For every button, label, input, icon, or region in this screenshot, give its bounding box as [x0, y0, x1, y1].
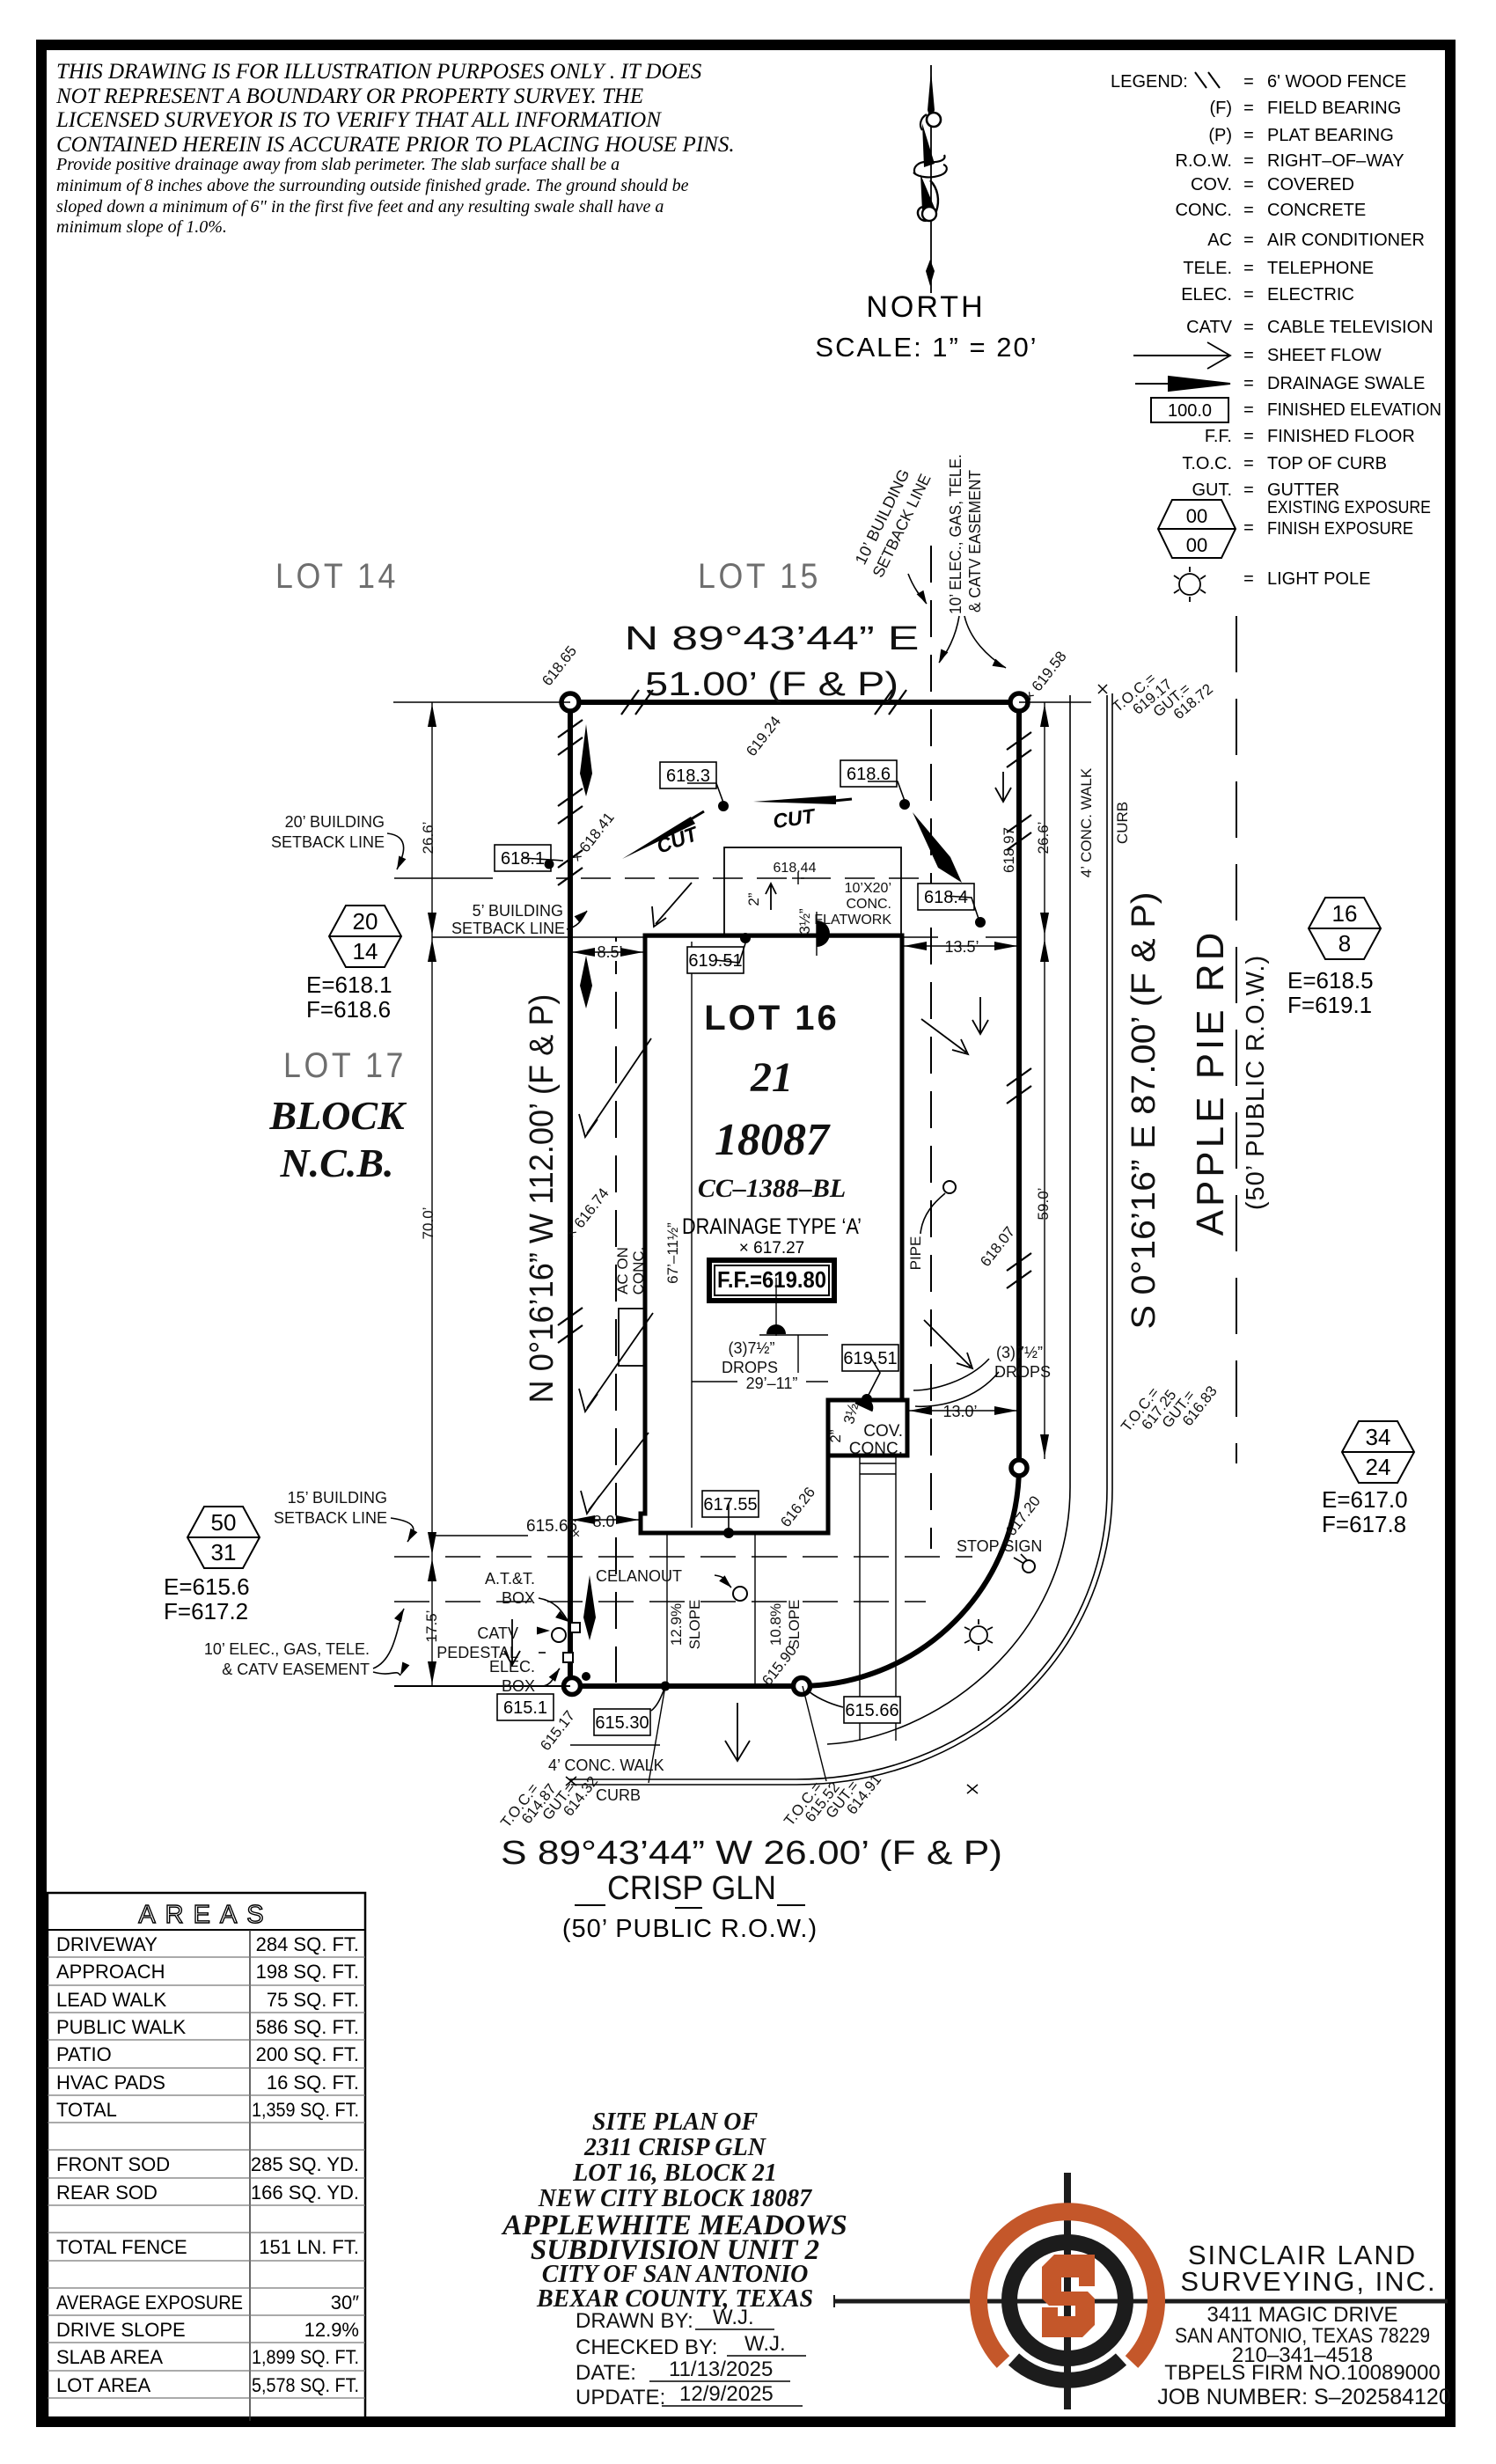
- svg-text:DRAINAGE TYPE ‘A’: DRAINAGE TYPE ‘A’: [682, 1214, 862, 1239]
- svg-text:21: 21: [750, 1054, 793, 1101]
- svg-text:DRIVEWAY: DRIVEWAY: [56, 1933, 158, 1955]
- svg-text:×: ×: [572, 1527, 580, 1542]
- svg-text:W.J.: W.J.: [713, 2306, 754, 2329]
- svg-text:E=615.6: E=615.6: [164, 1573, 250, 1600]
- svg-text:EXISTING EXPOSURE: EXISTING EXPOSURE: [1267, 498, 1431, 517]
- svg-text:CHECKED BY:: CHECKED BY:: [576, 2336, 717, 2359]
- svg-text:LOT 16: LOT 16: [704, 999, 840, 1038]
- svg-text:285 SQ. YD.: 285 SQ. YD.: [251, 2153, 359, 2175]
- svg-text:8.0’: 8.0’: [592, 1513, 618, 1530]
- svg-text:2”: 2”: [745, 892, 762, 906]
- svg-text:26.6’: 26.6’: [1035, 822, 1052, 854]
- svg-text:615.66: 615.66: [526, 1517, 577, 1536]
- svg-text:1,359 SQ. FT.: 1,359 SQ. FT.: [252, 2099, 359, 2121]
- svg-text:SETBACK LINE: SETBACK LINE: [451, 920, 565, 937]
- svg-text:619.51: 619.51: [843, 1349, 897, 1368]
- svg-text:=: =: [1243, 518, 1254, 538]
- svg-text:FLATWORK: FLATWORK: [814, 913, 891, 928]
- svg-text:S 89°43’44” W 26.00’ (F & P): S 89°43’44” W 26.00’ (F & P): [501, 1835, 1002, 1872]
- svg-text:619.51: 619.51: [688, 951, 742, 971]
- svg-text:(50’ PUBLIC R.O.W.): (50’ PUBLIC R.O.W.): [1242, 955, 1270, 1210]
- svg-text:FRONT SOD: FRONT SOD: [56, 2153, 170, 2175]
- svg-text:586 SQ. FT.: 586 SQ. FT.: [256, 2016, 359, 2038]
- svg-text:67’–11½”: 67’–11½”: [664, 1222, 681, 1284]
- svg-text:615.1: 615.1: [503, 1698, 547, 1718]
- svg-text:LIGHT POLE: LIGHT POLE: [1267, 569, 1370, 589]
- svg-text:SITE PLAN OF: SITE PLAN OF: [592, 2108, 759, 2136]
- svg-text:(3)7½”: (3)7½”: [996, 1344, 1043, 1361]
- svg-text:& CATV EASEMENT: & CATV EASEMENT: [966, 470, 984, 612]
- svg-text:minimum of 8 inches above the: minimum of 8 inches above the surroundin…: [56, 176, 689, 195]
- svg-text:TELE.: TELE.: [1183, 259, 1232, 278]
- svg-text:4’ CONC. WALK: 4’ CONC. WALK: [548, 1756, 664, 1774]
- svg-text:100.0: 100.0: [1168, 401, 1212, 421]
- svg-text:SETBACK LINE: SETBACK LINE: [274, 1509, 387, 1527]
- svg-text:NEW CITY BLOCK 18087: NEW CITY BLOCK 18087: [538, 2185, 812, 2212]
- svg-text:=: =: [1243, 569, 1254, 589]
- svg-text:DRAWN BY:: DRAWN BY:: [576, 2309, 693, 2333]
- svg-text:AREAS: AREAS: [138, 1901, 273, 1929]
- svg-text:NOT REPRESENT A BOUNDARY OR PR: NOT REPRESENT A BOUNDARY OR PROPERTY SUR…: [55, 84, 643, 108]
- svg-text:10.8%: 10.8%: [767, 1603, 784, 1646]
- svg-text:COVERED: COVERED: [1267, 175, 1354, 194]
- svg-text:N 0°16’16” W 112.00’ (F & P): N 0°16’16” W 112.00’ (F & P): [524, 994, 561, 1404]
- svg-text:E=617.0: E=617.0: [1322, 1486, 1408, 1513]
- svg-text:T.O.C.: T.O.C.: [1182, 454, 1232, 473]
- svg-text:GUT.: GUT.: [1192, 480, 1232, 500]
- svg-text:75 SQ. FT.: 75 SQ. FT.: [267, 1989, 359, 2011]
- svg-text:284 SQ. FT.: 284 SQ. FT.: [256, 1933, 359, 1955]
- svg-text:BOX: BOX: [502, 1589, 535, 1607]
- svg-text:CRISP GLN: CRISP GLN: [607, 1870, 776, 1907]
- svg-text:Provide positive drainage away: Provide positive drainage away from slab…: [55, 155, 620, 174]
- svg-text:17.5’: 17.5’: [423, 1610, 440, 1643]
- svg-text:PLAT BEARING: PLAT BEARING: [1267, 126, 1394, 145]
- svg-text:LEAD WALK: LEAD WALK: [56, 1989, 166, 2011]
- svg-text:615.30: 615.30: [595, 1713, 649, 1733]
- svg-text:RIGHT–OF–WAY: RIGHT–OF–WAY: [1267, 151, 1404, 171]
- svg-text:REAR SOD: REAR SOD: [56, 2182, 158, 2204]
- svg-text:TOP OF CURB: TOP OF CURB: [1267, 454, 1387, 473]
- svg-text:SETBACK LINE: SETBACK LINE: [271, 833, 385, 851]
- svg-text:LOT AREA: LOT AREA: [56, 2374, 151, 2396]
- svg-text:11/13/2025: 11/13/2025: [669, 2358, 773, 2381]
- svg-text:minimum slope of 1.0%.: minimum slope of 1.0%.: [56, 217, 227, 237]
- svg-text:12.9%: 12.9%: [668, 1603, 685, 1646]
- svg-text:CABLE TELEVISION: CABLE TELEVISION: [1267, 318, 1434, 337]
- svg-text:SCALE: 1” = 20’: SCALE: 1” = 20’: [815, 332, 1038, 363]
- svg-text:A.T.&T.: A.T.&T.: [485, 1570, 535, 1588]
- svg-text:× 617.27: × 617.27: [739, 1239, 805, 1258]
- svg-text:TELEPHONE: TELEPHONE: [1267, 259, 1374, 278]
- svg-text:F=617.2: F=617.2: [164, 1598, 248, 1624]
- svg-text:DATE:: DATE:: [576, 2361, 636, 2385]
- svg-text:BLOCK: BLOCK: [268, 1093, 407, 1138]
- svg-text:HVAC PADS: HVAC PADS: [56, 2072, 165, 2094]
- svg-text:CONC.: CONC.: [846, 897, 891, 912]
- svg-text:=: =: [1243, 374, 1254, 393]
- svg-text:E=618.1: E=618.1: [306, 972, 392, 998]
- svg-text:AVERAGE EXPOSURE: AVERAGE EXPOSURE: [56, 2292, 243, 2314]
- svg-text:F=617.8: F=617.8: [1322, 1511, 1406, 1537]
- svg-text:PIPE: PIPE: [907, 1236, 924, 1271]
- svg-text:10’ ELEC., GAS, TELE.: 10’ ELEC., GAS, TELE.: [204, 1640, 370, 1658]
- svg-text:JOB NUMBER: S–202584120: JOB NUMBER: S–202584120: [1157, 2385, 1451, 2409]
- svg-text:SLAB AREA: SLAB AREA: [56, 2346, 163, 2368]
- svg-text:200 SQ. FT.: 200 SQ. FT.: [256, 2043, 359, 2065]
- svg-text:COV.: COV.: [1191, 175, 1232, 194]
- svg-text:=: =: [1243, 231, 1254, 250]
- svg-text:3½”: 3½”: [796, 908, 813, 935]
- svg-text:CITY OF SAN ANTONIO: CITY OF SAN ANTONIO: [542, 2261, 809, 2288]
- svg-text:18087: 18087: [715, 1115, 831, 1165]
- svg-text:AC: AC: [1207, 231, 1232, 250]
- svg-text:& CATV EASEMENT: & CATV EASEMENT: [222, 1661, 370, 1678]
- svg-text:=: =: [1243, 72, 1254, 92]
- svg-text:LEGEND:: LEGEND:: [1111, 72, 1188, 92]
- svg-text:13.5’: 13.5’: [944, 938, 979, 956]
- svg-text:sloped down a minimum of 6" in: sloped down a minimum of 6" in the first…: [56, 197, 664, 216]
- svg-text:50: 50: [211, 1509, 237, 1536]
- svg-text:20’ BUILDING: 20’ BUILDING: [285, 813, 385, 831]
- svg-text:=: =: [1243, 427, 1254, 446]
- svg-text:FINISH EXPOSURE: FINISH EXPOSURE: [1267, 519, 1413, 539]
- svg-text:6' WOOD FENCE: 6' WOOD FENCE: [1267, 72, 1406, 92]
- svg-text:=: =: [1243, 126, 1254, 145]
- svg-text:F.F.: F.F.: [1205, 427, 1232, 446]
- svg-text:E=618.5: E=618.5: [1287, 967, 1374, 994]
- svg-text:STOP SIGN: STOP SIGN: [957, 1537, 1042, 1555]
- svg-text:=: =: [1243, 201, 1254, 220]
- svg-text:TBPELS FIRM NO.10089000: TBPELS FIRM NO.10089000: [1164, 2361, 1440, 2385]
- svg-text:166 SQ. YD.: 166 SQ. YD.: [251, 2182, 359, 2204]
- svg-text:14: 14: [353, 938, 378, 964]
- svg-text:=: =: [1243, 318, 1254, 337]
- svg-text:CELANOUT: CELANOUT: [596, 1567, 682, 1585]
- svg-text:=: =: [1243, 175, 1254, 194]
- svg-text:29’–11”: 29’–11”: [746, 1375, 798, 1392]
- svg-text:5,578 SQ. FT.: 5,578 SQ. FT.: [252, 2374, 359, 2396]
- svg-text:W.J.: W.J.: [744, 2332, 786, 2356]
- svg-text:SHEET FLOW: SHEET FLOW: [1267, 346, 1382, 365]
- svg-text:COV.: COV.: [863, 1422, 903, 1441]
- svg-text:F=618.6: F=618.6: [306, 996, 391, 1023]
- svg-text:DROPS: DROPS: [722, 1359, 778, 1376]
- svg-text:5’ BUILDING: 5’ BUILDING: [473, 902, 563, 920]
- svg-text:THIS DRAWING IS FOR ILLUSTRATI: THIS DRAWING IS FOR ILLUSTRATION PURPOSE…: [56, 60, 702, 84]
- svg-text:APPLE PIE RD: APPLE PIE RD: [1189, 929, 1232, 1236]
- svg-text:=: =: [1243, 454, 1254, 473]
- svg-text:4’ CONC. WALK: 4’ CONC. WALK: [1078, 767, 1095, 877]
- svg-text:(F): (F): [1209, 99, 1232, 118]
- svg-text:70.0’: 70.0’: [420, 1207, 436, 1240]
- svg-text:=: =: [1243, 480, 1254, 500]
- svg-text:CONC.: CONC.: [630, 1247, 647, 1295]
- svg-text:LOT 17: LOT 17: [283, 1046, 407, 1085]
- svg-text:APPROACH: APPROACH: [56, 1961, 165, 1983]
- svg-text:TOTAL: TOTAL: [56, 2099, 117, 2121]
- svg-text:=: =: [1243, 285, 1254, 304]
- svg-text:GUTTER: GUTTER: [1267, 480, 1339, 500]
- svg-text:2”: 2”: [827, 1429, 844, 1442]
- svg-text:00: 00: [1186, 505, 1207, 527]
- svg-text:CONTAINED HEREIN IS ACCURATE P: CONTAINED HEREIN IS ACCURATE PRIOR TO PL…: [56, 133, 735, 157]
- svg-text:N.C.B.: N.C.B.: [279, 1140, 393, 1185]
- svg-text:618.44: 618.44: [774, 861, 817, 876]
- svg-text:=: =: [1243, 151, 1254, 171]
- svg-text:F=619.1: F=619.1: [1287, 992, 1372, 1018]
- svg-text:8: 8: [1338, 930, 1351, 957]
- svg-text:3411 MAGIC DRIVE: 3411 MAGIC DRIVE: [1207, 2303, 1398, 2327]
- svg-text:N 89°43’44” E: N 89°43’44” E: [625, 620, 920, 657]
- svg-text:BOX: BOX: [502, 1677, 535, 1695]
- svg-text:151 LN. FT.: 151 LN. FT.: [259, 2236, 359, 2258]
- svg-text:617.55: 617.55: [703, 1495, 757, 1514]
- svg-text:LOT 15: LOT 15: [698, 557, 821, 596]
- svg-text:1,899 SQ. FT.: 1,899 SQ. FT.: [252, 2346, 359, 2368]
- svg-text:FIELD BEARING: FIELD BEARING: [1267, 99, 1401, 118]
- svg-text:51.00’ (F & P): 51.00’ (F & P): [645, 666, 898, 703]
- svg-text:CURB: CURB: [596, 1786, 641, 1804]
- svg-text:16 SQ. FT.: 16 SQ. FT.: [267, 2072, 359, 2094]
- svg-text:CURB: CURB: [1114, 802, 1131, 844]
- svg-text:UPDATE:: UPDATE:: [576, 2386, 665, 2409]
- svg-text:=: =: [1243, 400, 1254, 420]
- svg-text:ELEC.: ELEC.: [1181, 285, 1232, 304]
- svg-text:CONC.: CONC.: [1176, 201, 1232, 220]
- svg-text:34: 34: [1366, 1424, 1391, 1450]
- svg-text:SLOPE: SLOPE: [686, 1600, 703, 1650]
- svg-text:ELECTRIC: ELECTRIC: [1267, 285, 1354, 304]
- svg-text:CATV: CATV: [1186, 318, 1233, 337]
- svg-text:12.9%: 12.9%: [304, 2319, 359, 2341]
- svg-text:198 SQ. FT.: 198 SQ. FT.: [256, 1961, 359, 1983]
- svg-text:CONC.: CONC.: [849, 1440, 903, 1458]
- svg-text:SURVEYING, INC.: SURVEYING, INC.: [1180, 2266, 1436, 2297]
- svg-text:=: =: [1243, 259, 1254, 278]
- svg-text:00: 00: [1186, 534, 1207, 556]
- svg-text:13.0’: 13.0’: [942, 1403, 977, 1420]
- svg-text:S 0°16’16” E 87.00’ (F & P): S 0°16’16” E 87.00’ (F & P): [1126, 892, 1162, 1330]
- svg-text:31: 31: [211, 1539, 237, 1566]
- svg-text:59.0’: 59.0’: [1035, 1188, 1052, 1221]
- svg-text:30″: 30″: [331, 2292, 359, 2314]
- svg-text:CC–1388–BL: CC–1388–BL: [698, 1174, 846, 1203]
- svg-text:(3)7½”: (3)7½”: [728, 1339, 774, 1357]
- svg-text:10’X20’: 10’X20’: [845, 881, 891, 896]
- svg-text:12/9/2025: 12/9/2025: [679, 2382, 774, 2406]
- svg-text:NORTH: NORTH: [866, 290, 985, 324]
- svg-text:PATIO: PATIO: [56, 2043, 112, 2065]
- svg-text:LOT 14: LOT 14: [275, 557, 399, 596]
- svg-text:16: 16: [1332, 900, 1358, 927]
- svg-text:CONCRETE: CONCRETE: [1267, 201, 1366, 220]
- svg-text:F.F.=619.80: F.F.=619.80: [717, 1266, 826, 1293]
- svg-text:LICENSED SURVEYOR IS TO VERIFY: LICENSED SURVEYOR IS TO VERIFY THAT ALL …: [55, 108, 662, 132]
- svg-text:FINISHED FLOOR: FINISHED FLOOR: [1267, 427, 1415, 446]
- svg-text:26.6’: 26.6’: [420, 822, 436, 854]
- svg-text:DRAINAGE SWALE: DRAINAGE SWALE: [1267, 374, 1425, 393]
- svg-text:24: 24: [1366, 1454, 1391, 1480]
- svg-text:20: 20: [353, 908, 378, 935]
- svg-text:618.97: 618.97: [1001, 827, 1017, 873]
- svg-text:15’ BUILDING: 15’ BUILDING: [288, 1489, 387, 1507]
- svg-text:AIR CONDITIONER: AIR CONDITIONER: [1267, 231, 1425, 250]
- svg-text:R.O.W.: R.O.W.: [1176, 151, 1232, 171]
- svg-text:(50’ PUBLIC R.O.W.): (50’ PUBLIC R.O.W.): [562, 1915, 818, 1943]
- svg-text:=: =: [1243, 99, 1254, 118]
- svg-text:AC ON: AC ON: [614, 1247, 631, 1294]
- svg-text:615.66: 615.66: [845, 1701, 898, 1720]
- svg-text:LOT 16, BLOCK 21: LOT 16, BLOCK 21: [572, 2160, 777, 2187]
- svg-text:PUBLIC WALK: PUBLIC WALK: [56, 2016, 186, 2038]
- svg-text:(P): (P): [1208, 126, 1232, 145]
- svg-text:=: =: [1243, 346, 1254, 365]
- svg-text:FINISHED ELEVATION: FINISHED ELEVATION: [1267, 400, 1441, 420]
- svg-text:TOTAL FENCE: TOTAL FENCE: [56, 2236, 187, 2258]
- svg-text:10’ ELEC., GAS, TELE.: 10’ ELEC., GAS, TELE.: [947, 454, 964, 614]
- svg-text:DROPS: DROPS: [994, 1363, 1051, 1381]
- svg-text:DRIVE SLOPE: DRIVE SLOPE: [56, 2319, 186, 2341]
- svg-text:SLOPE: SLOPE: [786, 1600, 803, 1650]
- svg-text:2311 CRISP GLN: 2311 CRISP GLN: [583, 2134, 767, 2161]
